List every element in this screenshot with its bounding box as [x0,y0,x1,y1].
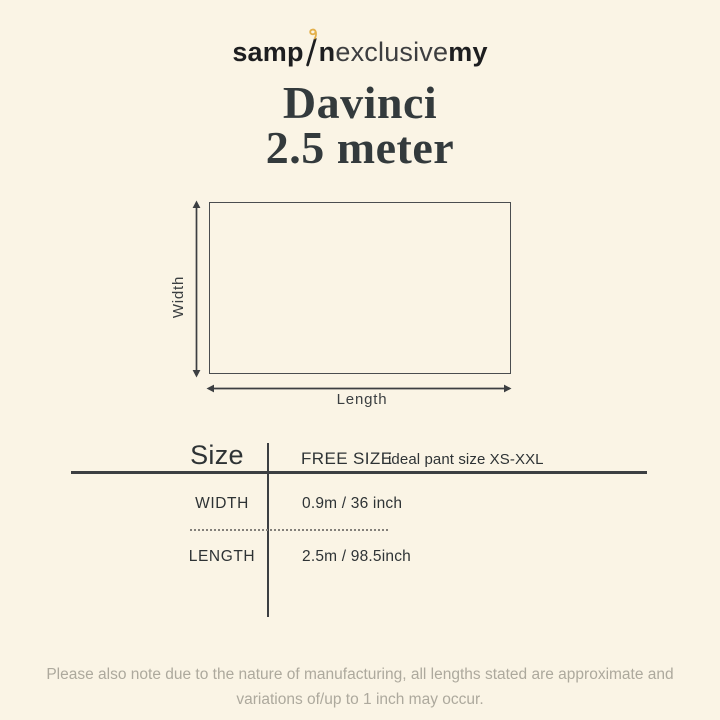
width-axis-label: Width [170,257,190,337]
logo-text-n: n [319,37,336,67]
product-title-line1: Davinci [0,80,720,125]
length-row-label: LENGTH [160,548,284,566]
size-chart-page: samp nexclusivemy Davinci 2.5 meter Widt… [0,0,720,720]
product-title: Davinci 2.5 meter [0,80,720,170]
size-table-header: Size [155,440,279,471]
pant-size-note: ideal pant size XS-XXL [388,451,544,468]
fabric-rectangle [209,202,511,374]
disclaimer-line1: Please also note due to the nature of ma… [0,662,720,687]
table-dotted-divider [190,529,388,531]
product-title-line2: 2.5 meter [0,125,720,170]
free-size-value: FREE SIZE [301,449,392,469]
disclaimer-text: Please also note due to the nature of ma… [0,662,720,712]
table-horizontal-divider [71,471,647,474]
length-row-value: 2.5m / 98.5inch [302,548,411,566]
logo-text-my: my [448,37,487,67]
width-arrow-icon [189,200,204,378]
logo-text-samp: samp [232,37,303,67]
needle-thread-icon [305,28,318,68]
length-axis-label: Length [282,391,442,408]
logo-text-exclusive: exclusive [335,37,448,67]
width-row-value: 0.9m / 36 inch [302,495,402,513]
brand-logo: samp nexclusivemy [0,28,720,68]
width-row-label: WIDTH [160,495,284,513]
disclaimer-line2: variations of/up to 1 inch may occur. [0,687,720,712]
